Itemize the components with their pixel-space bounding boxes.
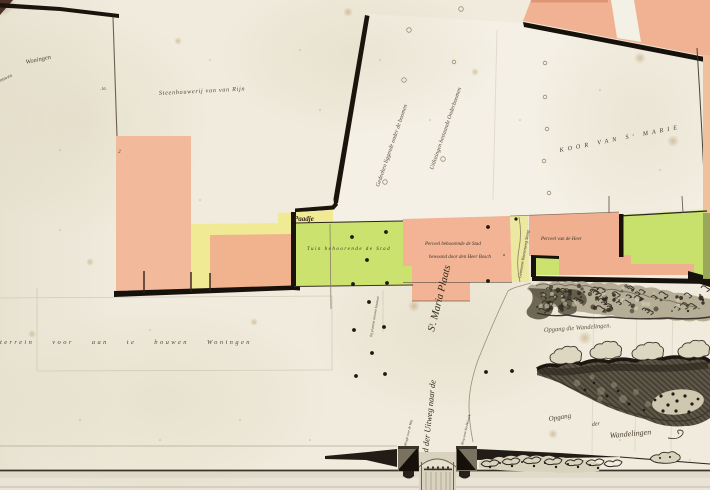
svg-text:Paadje: Paadje: [294, 215, 314, 223]
svg-text:der: der: [592, 421, 601, 428]
svg-text:terrein voor aan te bouwen Won: terrein voor aan te bouwen Woningen: [0, 339, 252, 346]
svg-text:Perceel van de Heer: Perceel van de Heer: [540, 237, 582, 242]
svg-text:Tuin behoorende de Stad: Tuin behoorende de Stad: [307, 247, 391, 252]
svg-text:Perceel behoorende de Stad: Perceel behoorende de Stad: [424, 242, 481, 247]
svg-text:2: 2: [118, 149, 121, 155]
svg-text:.16.: .16.: [100, 86, 107, 91]
svg-text:bewoond door den Heer Bosch: bewoond door den Heer Bosch: [429, 255, 491, 260]
